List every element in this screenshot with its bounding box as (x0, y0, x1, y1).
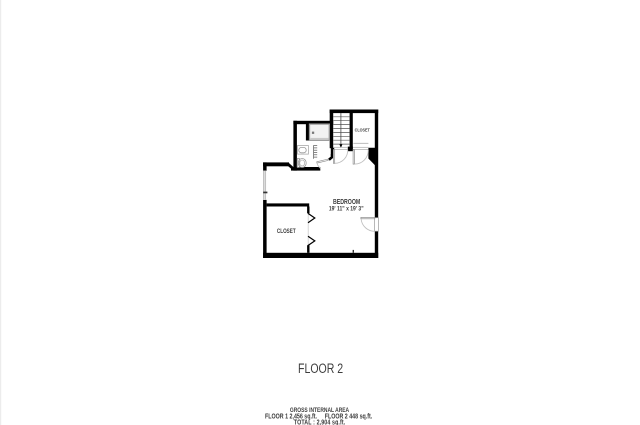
svg-text:TOTAL : 2,904 sq.ft.: TOTAL : 2,904 sq.ft. (294, 419, 346, 425)
svg-text:FLOOR 2: FLOOR 2 (298, 361, 343, 377)
svg-text:CLOSET: CLOSET (277, 228, 296, 235)
svg-text:19' 11" x 19' 3": 19' 11" x 19' 3" (329, 206, 364, 213)
svg-text:CLOSET: CLOSET (355, 127, 370, 133)
